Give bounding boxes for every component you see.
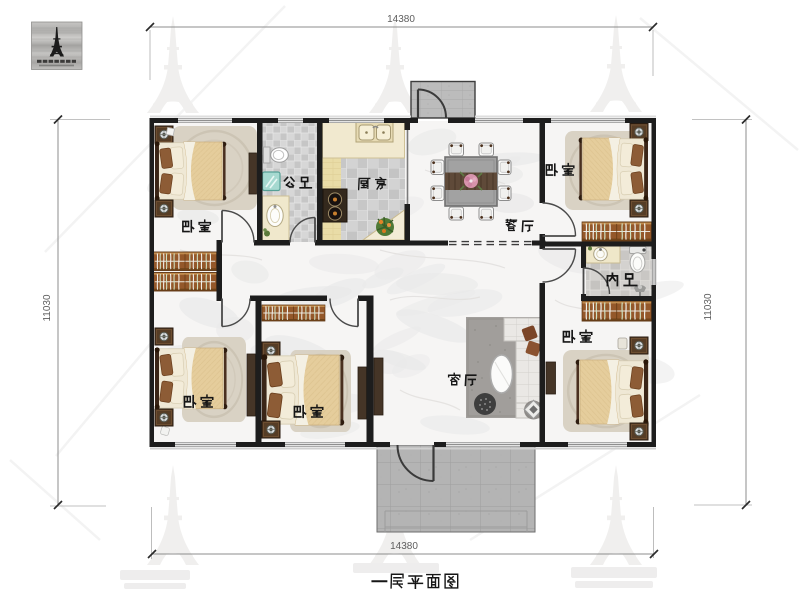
svg-text:14380: 14380: [387, 14, 415, 25]
svg-text:11030: 11030: [703, 293, 714, 321]
svg-text:11030: 11030: [42, 294, 53, 322]
svg-text:14380: 14380: [390, 541, 418, 552]
